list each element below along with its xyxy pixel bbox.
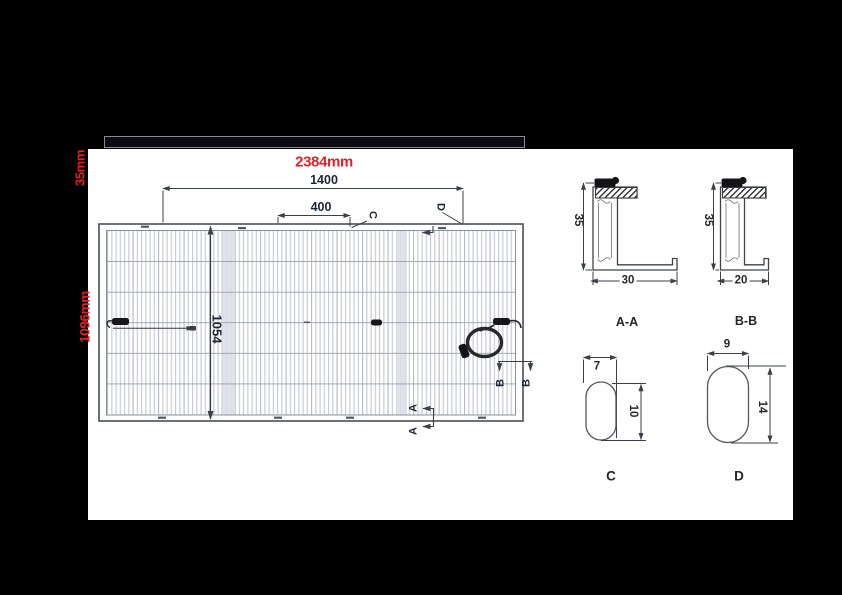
cut-c-label: C: [367, 211, 378, 219]
d-height-label: 14: [755, 401, 767, 414]
bb-title: B-B: [735, 315, 757, 328]
bb-height-label: 35: [701, 214, 713, 227]
d-width-label: 9: [724, 339, 730, 351]
cropped-table-bar: [104, 136, 525, 148]
cut-a2-label: A: [409, 427, 420, 435]
dim-400-label: 400: [311, 201, 332, 214]
d-title: D: [734, 469, 744, 483]
cut-d-label: D: [435, 203, 446, 211]
c-height-label: 10: [626, 405, 638, 418]
aa-height-label: 35: [571, 214, 583, 227]
cut-b1-label: B: [496, 379, 507, 387]
cut-a1-label: A: [409, 404, 420, 412]
frame-thickness-label: 35mm: [74, 150, 87, 186]
technical-drawing-page: 2384mm 35mm 1096mm 1400 400 1054 C D A A…: [0, 0, 842, 595]
bb-width-label: 20: [733, 275, 750, 287]
dim-1400-label: 1400: [310, 174, 338, 187]
c-width-label: 7: [594, 361, 600, 373]
c-title: C: [606, 469, 616, 483]
panel-height-label: 1096mm: [78, 291, 92, 343]
dim-1054-label: 1054: [211, 315, 224, 344]
aa-title: A-A: [616, 316, 638, 329]
panel-width-label: 2384mm: [295, 155, 353, 170]
cut-b2-label: B: [522, 379, 533, 387]
aa-width-label: 30: [620, 275, 637, 287]
